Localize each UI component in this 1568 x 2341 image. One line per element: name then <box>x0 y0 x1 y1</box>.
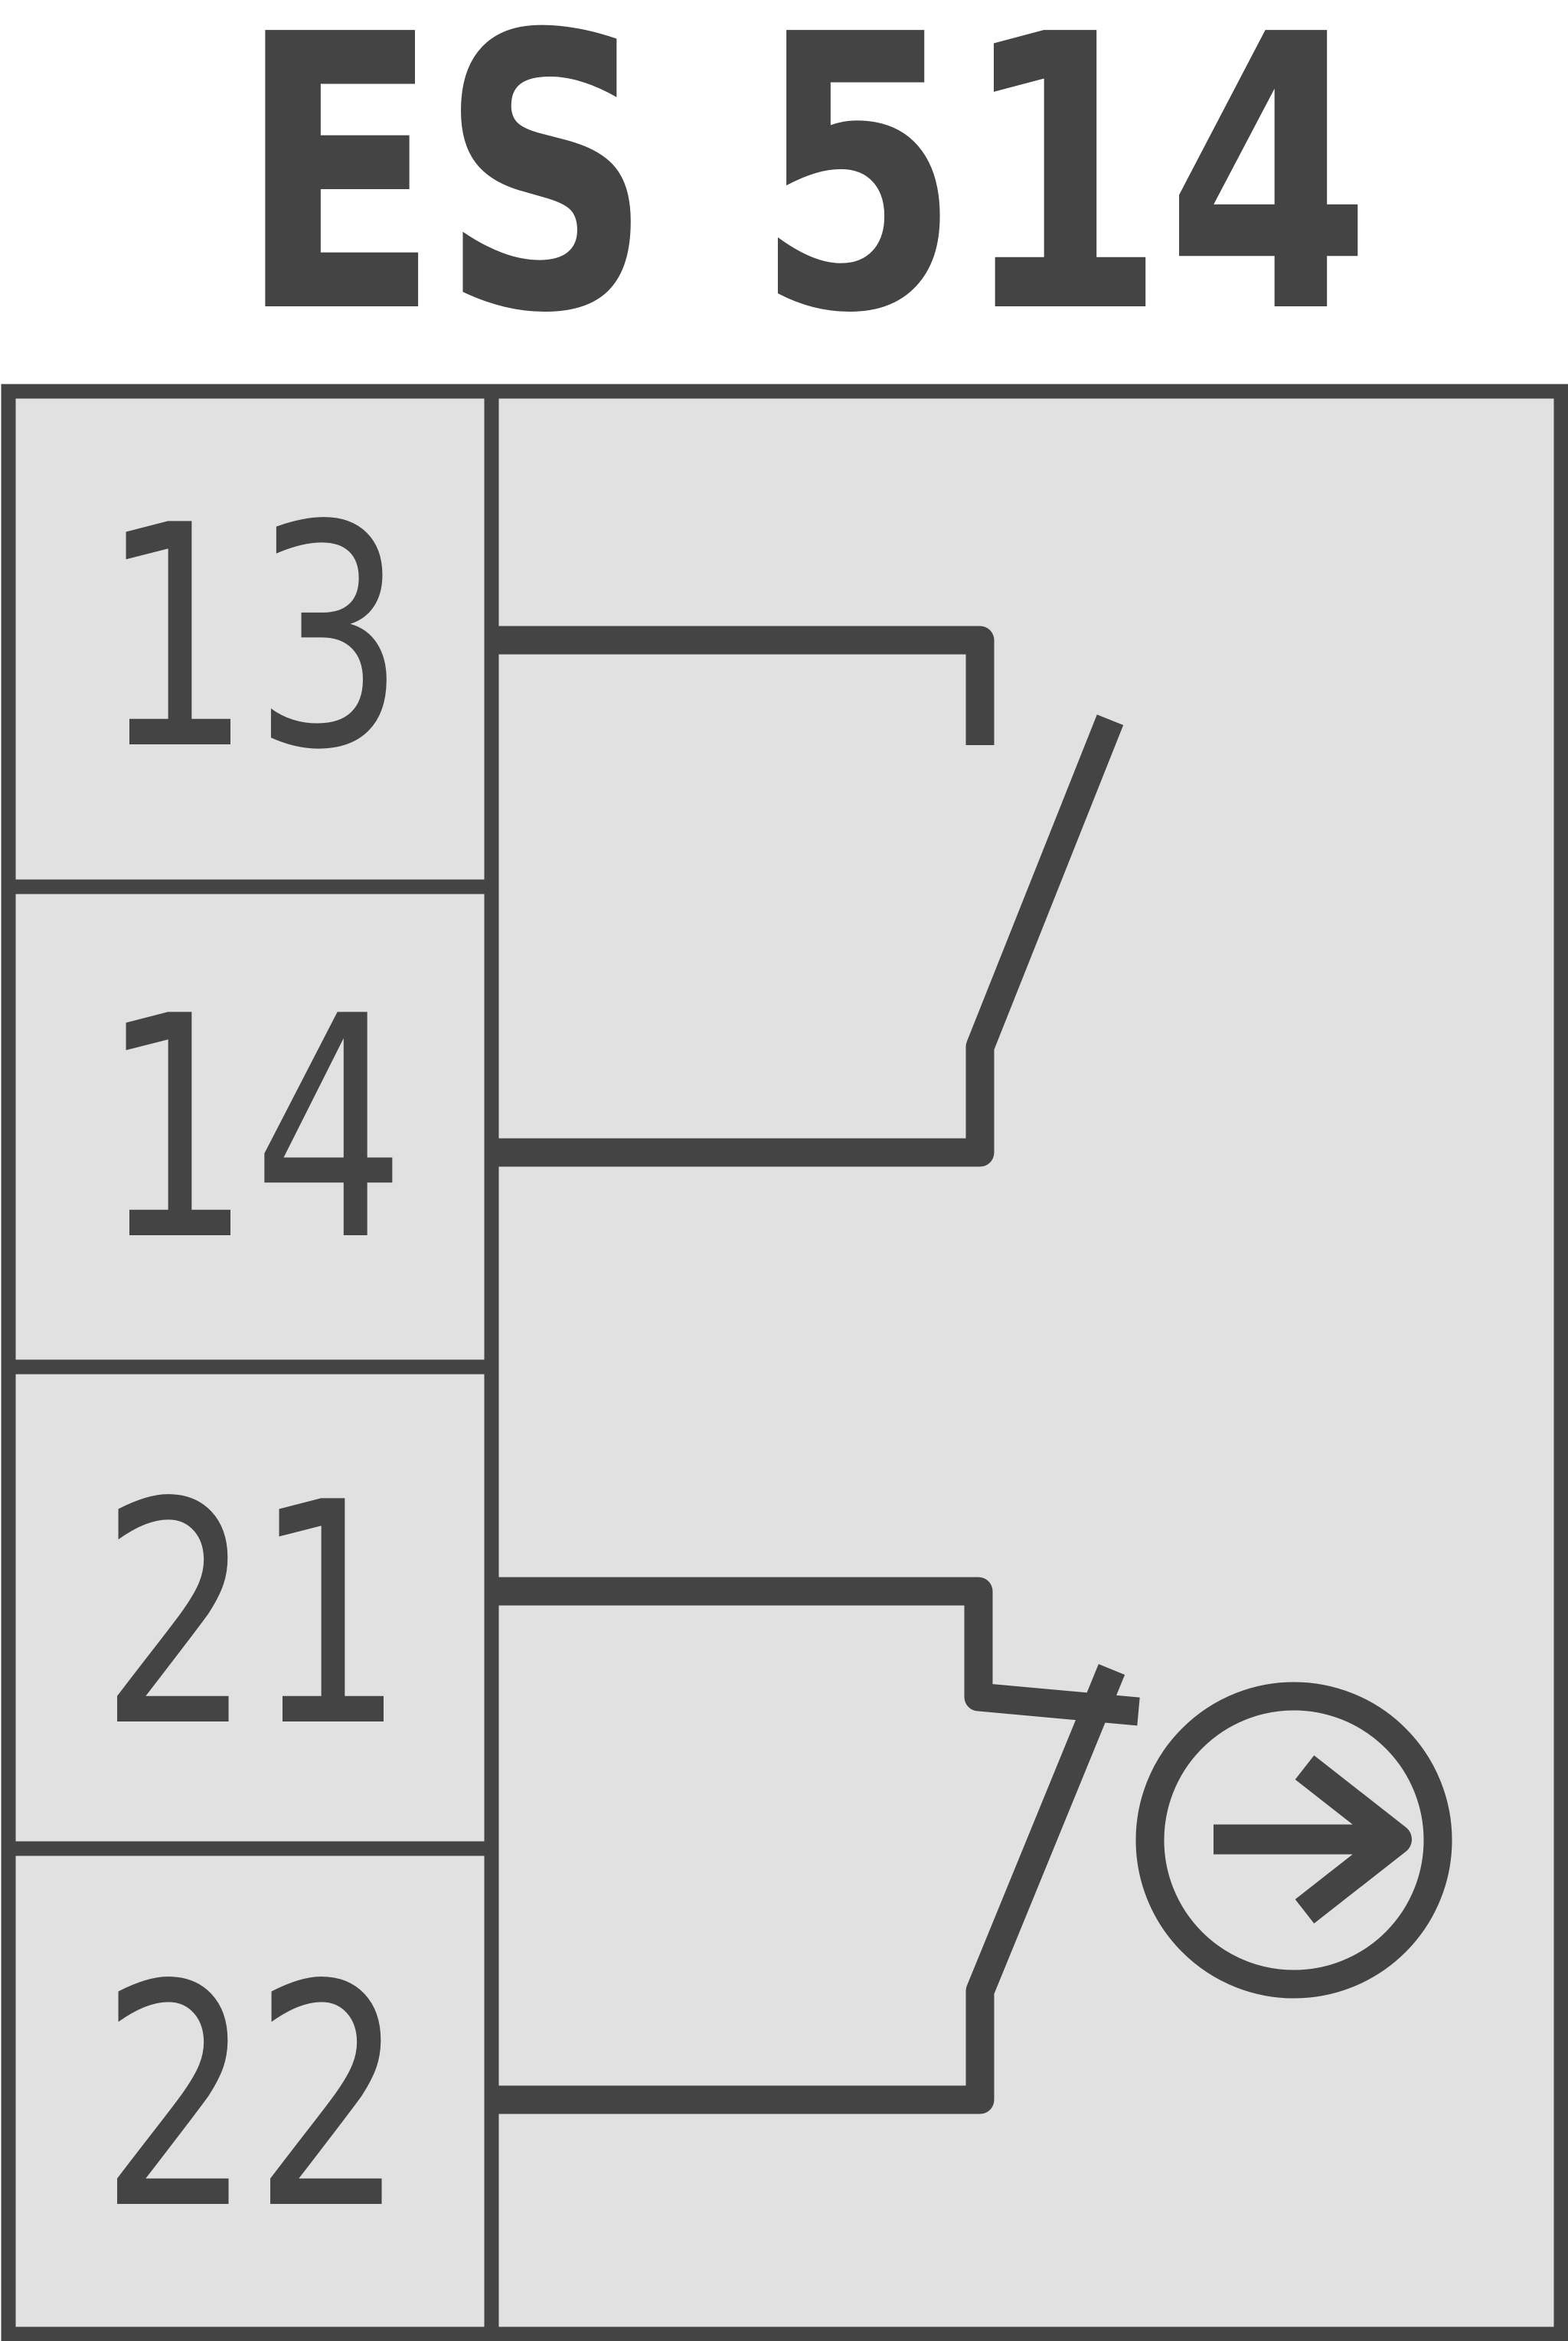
terminal-label-14: 14 <box>100 952 406 1308</box>
terminal-label-22: 22 <box>100 1921 406 2277</box>
es-514-datasheet-figure: ES 514 13 14 21 22 <box>0 0 1568 2341</box>
terminal-label-21: 21 <box>100 1438 406 1794</box>
terminal-label-13: 13 <box>100 461 406 817</box>
relay-contact-diagram: ES 514 13 14 21 22 <box>0 0 1568 2341</box>
page-title: ES 514 <box>238 0 1371 396</box>
